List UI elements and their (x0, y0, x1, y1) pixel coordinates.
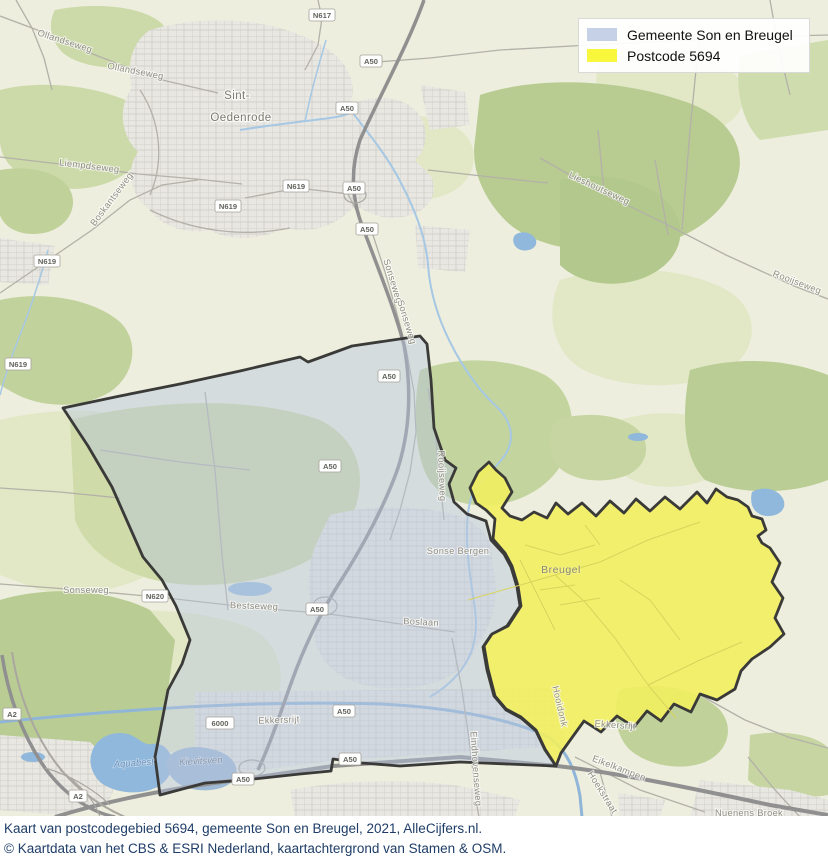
road-label: Boslaan (403, 616, 439, 628)
town-label-sint-oedenrode: Oedenrode (210, 112, 271, 124)
svg-text:N620: N620 (146, 592, 164, 601)
svg-text:A50: A50 (337, 707, 351, 716)
road-shield: A50 (360, 55, 382, 67)
legend-label-gemeente: Gemeente Son en Breugel (627, 27, 793, 43)
svg-text:A50: A50 (364, 57, 378, 66)
road-shield: N619 (5, 358, 31, 370)
svg-text:N617: N617 (313, 11, 331, 20)
svg-text:N619: N619 (38, 257, 56, 266)
legend-swatch-gemeente (587, 28, 617, 41)
caption-line-1: Kaart van postcodegebied 5694, gemeente … (4, 819, 828, 839)
svg-text:A2: A2 (73, 792, 83, 801)
svg-text:A50: A50 (310, 605, 324, 614)
svg-text:A50: A50 (382, 372, 396, 381)
road-shield: N619 (283, 180, 309, 192)
road-shield: N617 (309, 9, 335, 21)
town-label-breugel: Breugel (541, 564, 581, 576)
svg-text:6000: 6000 (212, 719, 229, 728)
svg-text:N619: N619 (287, 182, 305, 191)
road-shield: A50 (343, 182, 365, 194)
road-shield: N619 (215, 200, 241, 212)
legend-item-postcode: Postcode 5694 (587, 45, 801, 66)
map-canvas[interactable]: N617 A50 A50 N619 N619 N619 N619 A50 A50… (0, 0, 828, 817)
legend-item-gemeente: Gemeente Son en Breugel (587, 24, 801, 45)
caption: Kaart van postcodegebied 5694, gemeente … (0, 816, 828, 861)
legend-swatch-postcode (587, 49, 617, 62)
svg-text:A50: A50 (323, 462, 337, 471)
road-label: Sonseweg (63, 585, 109, 595)
area-label-sonse-bergen: Sonse Bergen (427, 546, 490, 556)
town-label-sint-oedenrode: Sint- (224, 90, 250, 102)
svg-text:A50: A50 (360, 225, 374, 234)
road-shield: A50 (378, 370, 400, 382)
road-label: Rooijseweg (436, 450, 448, 501)
svg-text:A50: A50 (343, 755, 357, 764)
road-shield: A50 (333, 705, 355, 717)
svg-text:A50: A50 (236, 775, 250, 784)
svg-text:A50: A50 (347, 184, 361, 193)
legend-label-postcode: Postcode 5694 (627, 48, 720, 64)
road-shield: A50 (339, 753, 361, 765)
area-label-ekkersrijt: Ekkersrijt (258, 714, 300, 725)
svg-text:A50: A50 (340, 104, 354, 113)
road-shield: A50 (232, 773, 254, 785)
road-label: Bestseweg (230, 600, 279, 612)
svg-text:N619: N619 (9, 360, 27, 369)
map-screenshot: N617 A50 A50 N619 N619 N619 N619 A50 A50… (0, 0, 828, 861)
road-shield: A50 (319, 460, 341, 472)
legend: Gemeente Son en Breugel Postcode 5694 (578, 18, 810, 73)
water-label: Kievitsven (179, 755, 223, 768)
svg-text:N619: N619 (219, 202, 237, 211)
caption-line-2: © Kaartdata van het CBS & ESRI Nederland… (4, 839, 828, 859)
road-shield: N620 (142, 590, 168, 602)
road-shield: A50 (336, 102, 358, 114)
road-shield: 6000 (206, 717, 234, 729)
svg-text:A2: A2 (7, 710, 17, 719)
road-shield: A2 (3, 708, 21, 720)
road-shield: A50 (306, 603, 328, 615)
road-shield: N619 (34, 255, 60, 267)
road-shield: A50 (356, 223, 378, 235)
road-shield: A2 (69, 790, 87, 802)
